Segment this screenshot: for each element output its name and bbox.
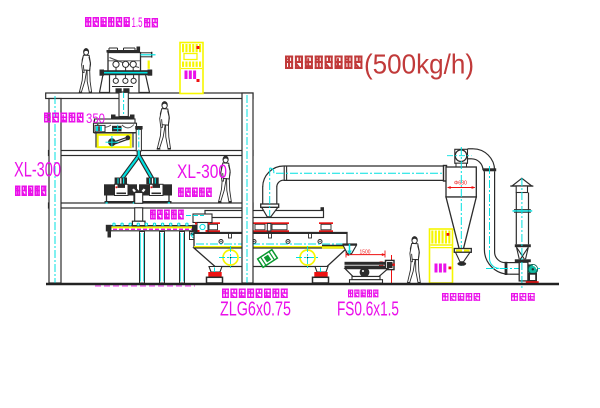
- svg-text:XL-300: XL-300: [177, 162, 227, 183]
- svg-text:ZLG6x0.75: ZLG6x0.75: [220, 299, 291, 321]
- svg-text:XL-300: XL-300: [14, 159, 61, 182]
- svg-text:1.5: 1.5: [132, 15, 143, 30]
- svg-text:1500: 1500: [360, 249, 371, 255]
- svg-text:Φ630: Φ630: [454, 181, 467, 187]
- svg-text:(500kg/h): (500kg/h): [364, 49, 474, 80]
- svg-text:350: 350: [86, 111, 105, 126]
- svg-text:FS0.6x1.5: FS0.6x1.5: [337, 299, 399, 321]
